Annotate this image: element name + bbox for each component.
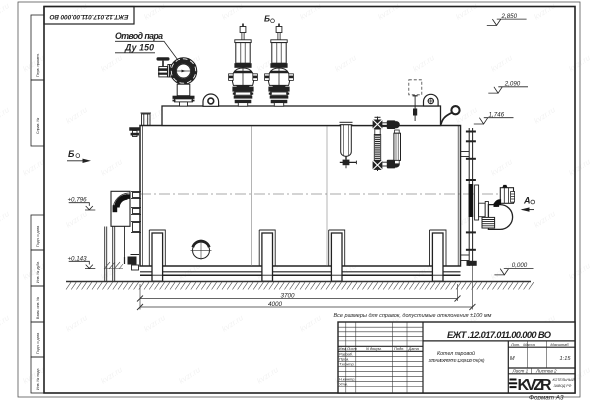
svg-text:4000: 4000 [268,301,283,308]
svg-text:ЗАВОД РФ: ЗАВОД РФ [554,384,572,388]
svg-text:Б: Б [264,14,270,24]
svg-text:Листов 2: Листов 2 [535,369,557,374]
svg-text:Ду 150: Ду 150 [124,43,154,53]
svg-text:А: А [523,196,531,206]
svg-text:2,090: 2,090 [504,80,521,87]
svg-text:КОТЕЛЬНЫЙ: КОТЕЛЬНЫЙ [553,378,576,382]
svg-text:Утв.: Утв. [339,382,348,387]
svg-text:Формат А3: Формат А3 [529,395,564,400]
svg-text:Взам. инв. №: Взам. инв. № [36,297,40,319]
svg-text:Дата: Дата [408,346,420,351]
svg-text:KVZR: KVZR [518,377,552,394]
svg-text:М: М [510,356,515,362]
svg-text:Отвод пара: Отвод пара [115,31,163,41]
svg-text:3700: 3700 [280,292,295,299]
svg-text:0,000: 0,000 [512,262,528,269]
svg-text:Подп. и дата: Подп. и дата [36,333,40,354]
svg-text:Перв. примен.: Перв. примен. [36,53,40,77]
svg-text:1:15: 1:15 [560,356,572,362]
svg-text:STEAMEXPERT- Е -1,2-0,9-130- Т: STEAMEXPERT- Е -1,2-0,9-130- ТЖ ( Ж ) [429,358,486,363]
svg-text:Лист 1: Лист 1 [512,369,529,374]
svg-text:Инв. № подл.: Инв. № подл. [36,368,40,390]
svg-text:ЕЖТ .12.017.011.00.000 ВО: ЕЖТ .12.017.011.00.000 ВО [447,330,552,340]
svg-text:Подп.: Подп. [394,346,404,351]
svg-text:Подп. и дата: Подп. и дата [36,226,40,247]
svg-text:Изм Лист: Изм Лист [339,346,358,351]
svg-text:ЕЖТ.12.017.011.00.000 ВО: ЕЖТ.12.017.011.00.000 ВО [50,13,129,20]
svg-text:Б: Б [68,149,75,159]
svg-text:N докум.: N докум. [366,346,382,351]
svg-text:Т.контр.: Т.контр. [339,362,355,367]
svg-text:Котел паровой: Котел паровой [437,350,475,357]
svg-text:Все размеры для справок, допус: Все размеры для справок, допустимые откл… [334,313,492,319]
svg-text:Справ. №: Справ. № [36,118,40,134]
svg-text:Масштаб: Масштаб [550,342,569,347]
svg-text:Лит.: Лит. [510,342,520,347]
svg-text:Масса: Масса [523,342,535,347]
svg-text:Инв. № дубл.: Инв. № дубл. [36,261,40,283]
